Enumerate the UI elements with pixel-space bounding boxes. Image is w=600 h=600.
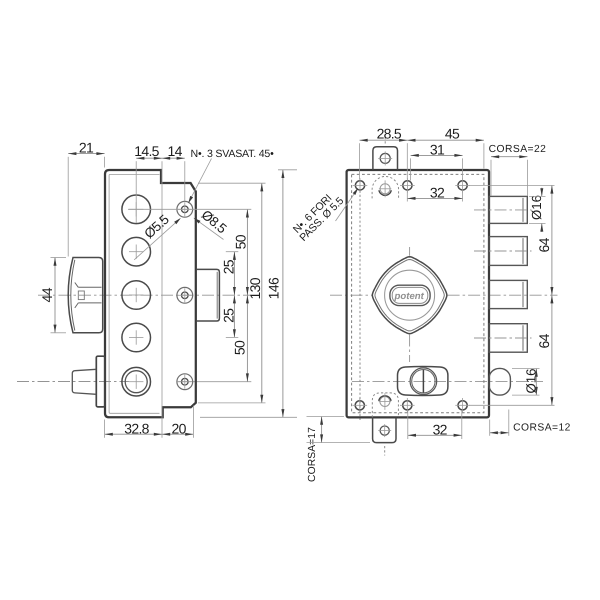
svg-text:N•. 3 SVASAT. 45•: N•. 3 SVASAT. 45• <box>191 148 275 160</box>
svg-text:14.5: 14.5 <box>134 143 159 159</box>
svg-text:CORSA=12: CORSA=12 <box>513 422 571 433</box>
svg-text:Ø16: Ø16 <box>529 195 544 220</box>
svg-text:CORSA=22: CORSA=22 <box>489 144 547 155</box>
svg-text:CORSA=17: CORSA=17 <box>307 427 318 482</box>
svg-text:32: 32 <box>430 184 445 200</box>
svg-text:50: 50 <box>232 234 248 249</box>
svg-text:28.5: 28.5 <box>377 126 402 142</box>
svg-text:50: 50 <box>232 340 248 355</box>
svg-text:potent: potent <box>394 291 425 302</box>
svg-text:14: 14 <box>168 143 183 159</box>
svg-text:64: 64 <box>536 237 552 252</box>
svg-text:130: 130 <box>247 277 263 299</box>
svg-text:44: 44 <box>39 287 55 302</box>
svg-text:45: 45 <box>445 126 460 142</box>
svg-text:64: 64 <box>536 333 552 348</box>
svg-text:146: 146 <box>266 277 282 299</box>
